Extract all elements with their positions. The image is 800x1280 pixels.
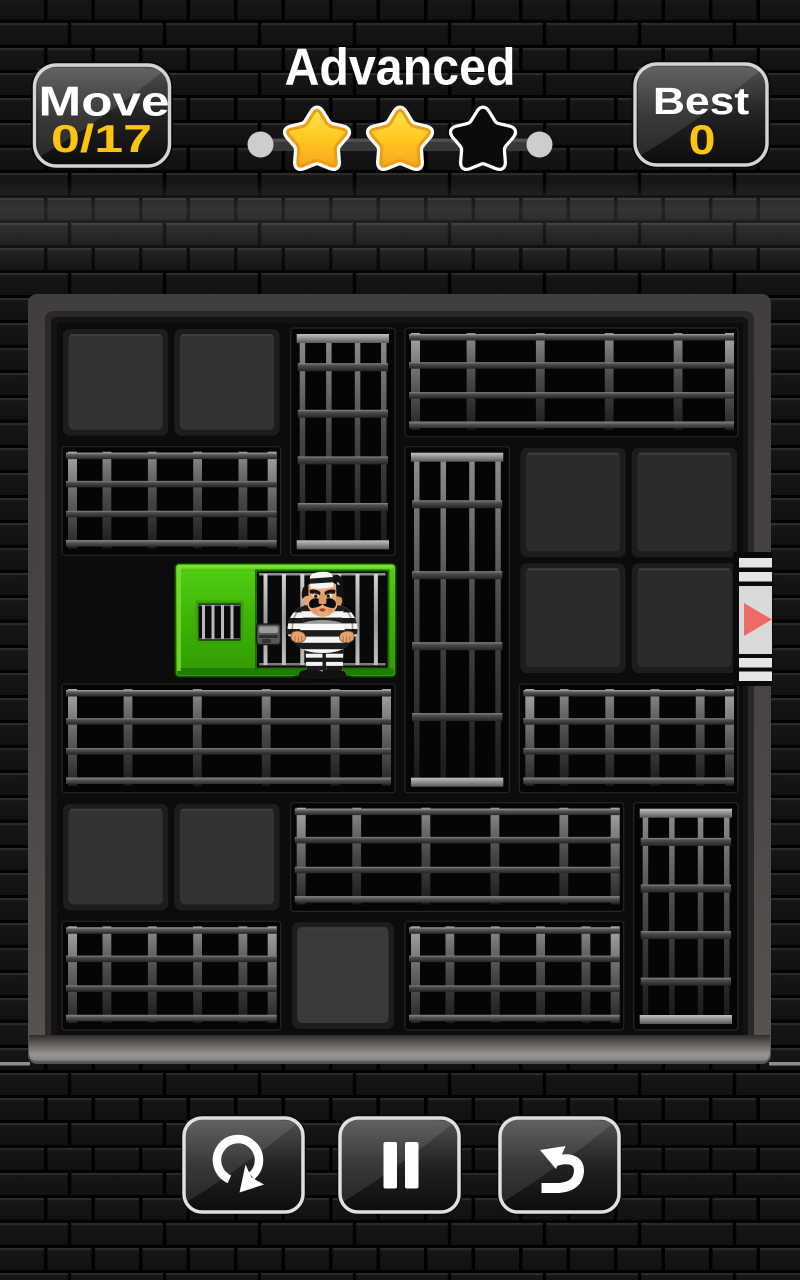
svg-text:Advanced: Advanced [284, 38, 515, 96]
svg-text:0: 0 [689, 116, 716, 163]
svg-text:0/17: 0/17 [51, 116, 152, 160]
